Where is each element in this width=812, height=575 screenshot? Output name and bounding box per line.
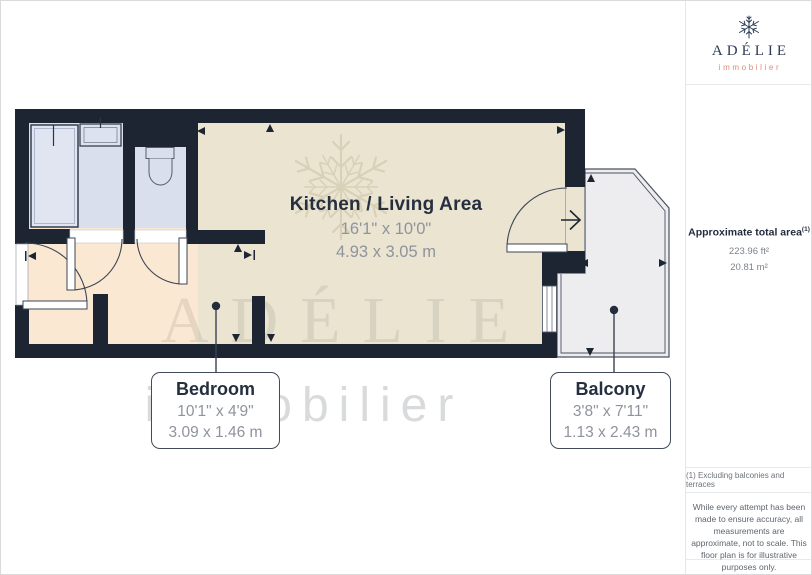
balcony-label: Balcony 3'8" x 7'11" 1.13 x 2.43 m xyxy=(550,372,671,449)
brand-logo: ADÉLIE immobilier xyxy=(686,1,812,85)
total-area-section: Approximate total area(1) 223.96 ft² 20.… xyxy=(686,85,812,468)
floor-plan: ADÉLIE immobilier xyxy=(1,1,685,575)
wall-hall-living xyxy=(186,230,265,244)
room-name: Bedroom xyxy=(152,379,279,400)
dim-arrow-stop xyxy=(254,250,256,260)
floor-plan-drawing: ADÉLIE immobilier xyxy=(1,1,685,575)
total-area-imperial: 223.96 ft² xyxy=(686,246,812,257)
dim-arrow-stop xyxy=(25,251,27,261)
brand-name: ADÉLIE xyxy=(708,43,790,60)
wall-right-upper xyxy=(565,123,585,187)
bedroom-label: Bedroom 10'1" x 4'9" 3.09 x 1.46 m xyxy=(151,372,280,449)
room-dimensions-imperial: 10'1" x 4'9" xyxy=(152,402,279,421)
balcony-door-threshold xyxy=(565,187,585,251)
bedroom-leader-dot xyxy=(212,302,220,310)
wall-wc-living-divider xyxy=(186,123,198,244)
wall-balcony-door-side xyxy=(542,251,585,273)
disclaimer-section: While every attempt has been made to ens… xyxy=(686,493,812,560)
balcony-leader-dot xyxy=(610,306,618,314)
brand-tagline: immobilier xyxy=(717,63,781,72)
total-area-label: Approximate total area(1) xyxy=(686,226,812,239)
snowflake-icon xyxy=(737,14,761,40)
wall-bathroom-bottom xyxy=(15,229,70,244)
wall-stub-bedroom-living xyxy=(252,296,265,344)
wall-bathroom-wc-divider xyxy=(123,123,135,244)
sidebar-spacer xyxy=(686,560,812,574)
entrance-door-leaf xyxy=(23,301,87,309)
footnote: (1) Excluding balconies and terraces xyxy=(686,468,812,493)
toilet-bowl-icon xyxy=(149,159,172,186)
wall-window-top xyxy=(542,273,557,286)
wc-door-leaf xyxy=(179,238,187,284)
wall-left-upper xyxy=(15,109,29,244)
room-dimensions-metric: 1.13 x 2.43 m xyxy=(551,423,670,442)
room-name: Balcony xyxy=(551,379,670,400)
kitchen-living-label: Kitchen / Living Area 16'1" x 10'0" 4.93… xyxy=(269,194,503,262)
window xyxy=(543,286,557,332)
wall-bottom xyxy=(15,344,557,358)
wc-door-threshold xyxy=(135,230,186,243)
total-area-label-text: Approximate total area xyxy=(688,227,802,239)
toilet-tank xyxy=(146,148,174,159)
info-sidebar: ADÉLIE immobilier Approximate total area… xyxy=(685,1,812,574)
bathroom-door-leaf xyxy=(67,238,75,290)
wall-window-bottom xyxy=(542,332,557,358)
room-dimensions-imperial: 16'1" x 10'0" xyxy=(269,219,503,239)
total-area-footnote-ref: (1) xyxy=(802,226,810,233)
room-name: Kitchen / Living Area xyxy=(269,194,503,216)
bathroom-door-threshold xyxy=(70,230,123,243)
wall-stub-closet xyxy=(93,294,108,344)
room-dimensions-metric: 4.93 x 3.05 m xyxy=(269,242,503,262)
balcony-door-leaf xyxy=(507,244,567,252)
room-dimensions-metric: 3.09 x 1.46 m xyxy=(152,423,279,442)
floorplan-page: ADÉLIE immobilier xyxy=(0,0,812,575)
room-dimensions-imperial: 3'8" x 7'11" xyxy=(551,402,670,421)
total-area-metric: 20.81 m² xyxy=(686,262,812,273)
shower-icon xyxy=(31,125,78,227)
